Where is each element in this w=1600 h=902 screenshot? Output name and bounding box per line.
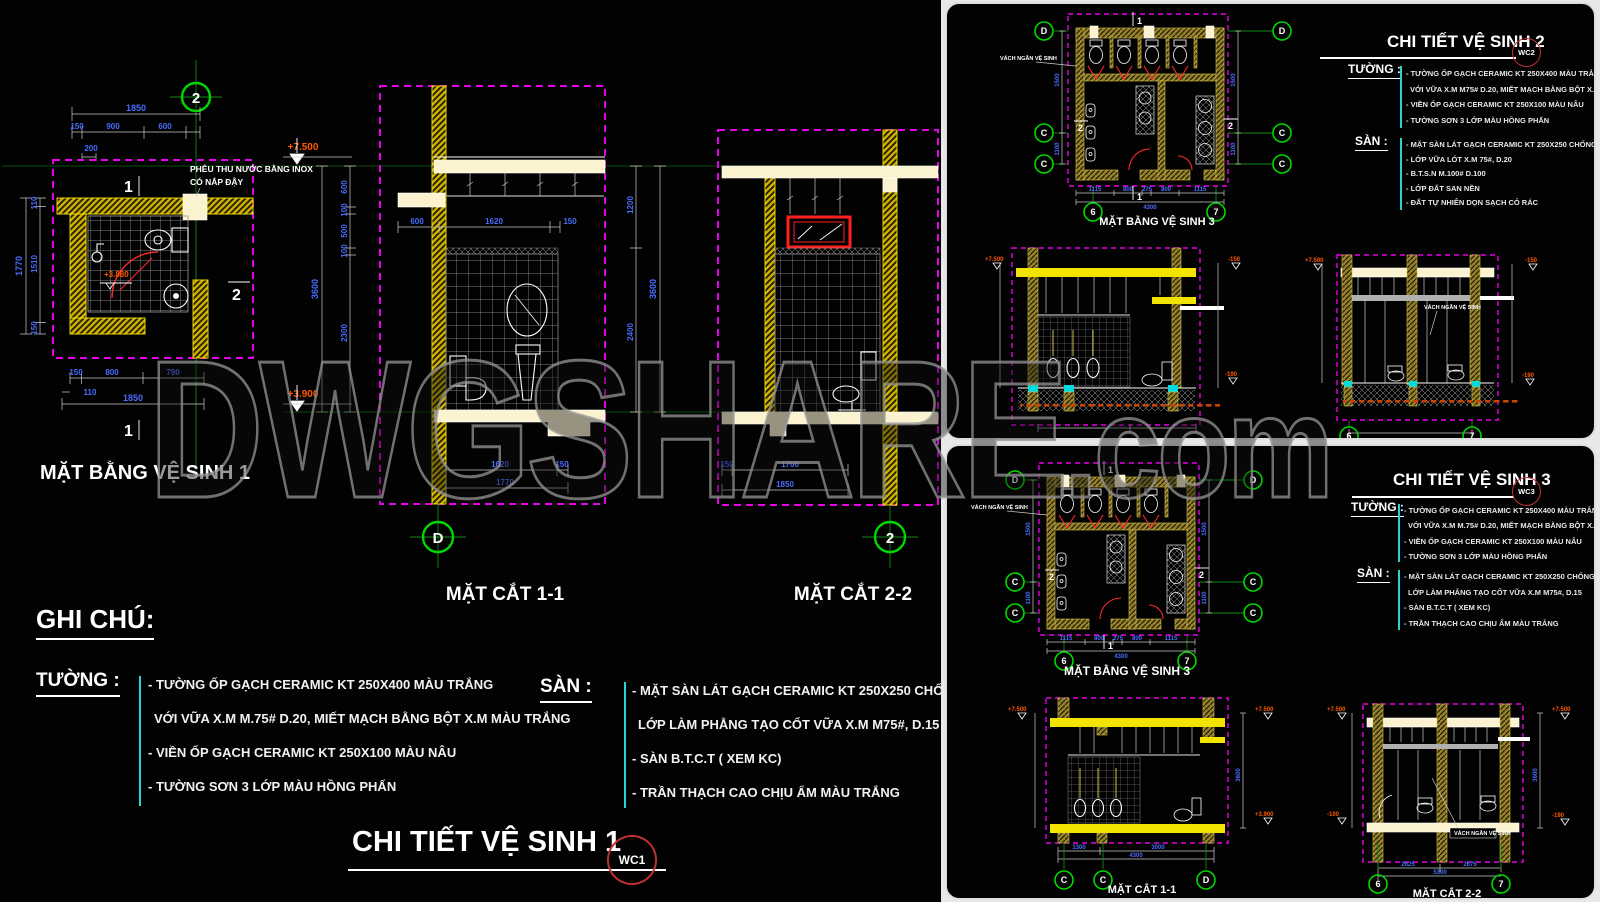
level-marker	[1529, 264, 1537, 270]
grid-label: 2	[886, 530, 894, 547]
dim-label: 1850	[123, 393, 143, 403]
dim-label: 2625	[1401, 862, 1415, 868]
level-label: -100	[1327, 812, 1340, 818]
grid-label: C	[1061, 875, 1068, 885]
elevation-b: VÁCH NGĂN VỆ SINH +7.500 -150 -190 6 7	[1305, 255, 1538, 440]
dim-label: 2400	[626, 323, 635, 341]
section-mark: 1	[124, 423, 133, 440]
dim-label: 2300	[340, 324, 349, 342]
level-marker	[290, 401, 304, 411]
grid-label: C	[1041, 159, 1048, 169]
note-line: VỚI VỮA X.M M75# D.20, MIẾT MẠCH BẰNG BỘ…	[1406, 82, 1596, 98]
sheet-wc2: D C C D C C 6 7	[945, 2, 1596, 440]
grid-label: 6	[1346, 431, 1351, 440]
level-marker	[1314, 264, 1322, 270]
dim-label: 4300	[1143, 205, 1157, 211]
partition-note: VÁCH NGĂN VỆ SINH	[1454, 829, 1511, 837]
dim-label: 1700	[781, 460, 799, 469]
dim-label: 1770	[496, 478, 514, 487]
plan-title: MẶT BẰNG VỆ SINH 3	[1057, 664, 1197, 678]
sink-counter	[1136, 86, 1214, 164]
divider	[1398, 570, 1400, 630]
plan-title: MẶT BẰNG VỆ SINH 3	[1087, 216, 1227, 228]
dim-label: 150	[720, 460, 734, 469]
wall-notes: - TƯỜNG ỐP GẠCH CERAMIC KT 250X400 MÀU T…	[1404, 503, 1596, 564]
level-label: +7.500	[288, 142, 319, 153]
divider	[624, 682, 626, 808]
dim-label: 3600	[648, 279, 658, 299]
note-line: - VIỀN ỐP GẠCH CERAMIC KT 250X100 MÀU NÂ…	[1406, 97, 1596, 113]
note-line: LỚP LÀM PHẲNG TẠO CỐT VỮA X.M M75#, D.15	[632, 708, 941, 742]
section-2-2-wc3: VÁCH NGĂN VỆ SINH +7.500 -100 +7.500 -19…	[1327, 704, 1571, 893]
dim-label: 790	[166, 368, 180, 377]
dim-label: 800	[105, 368, 119, 377]
title-underline	[1320, 57, 1516, 59]
grid-label: D	[1041, 26, 1048, 36]
note-line: VỚI VỮA X.M M.75# D.20, MIẾT MẠCH BẰNG B…	[148, 702, 570, 736]
wc-badge: WC3	[1512, 477, 1541, 506]
note-line: - TRẦN THẠCH CAO CHỊU ẨM MÀU TRẮNG	[1404, 616, 1596, 632]
partition-note: VÁCH NGĂN VỆ SINH	[1424, 303, 1481, 311]
note-line: - LỚP ĐẤT SAN NỀN	[1406, 182, 1596, 197]
section-title: MẶT CẮT 2-2	[778, 584, 928, 606]
note-line: - TƯỜNG ỐP GẠCH CERAMIC KT 250X400 MÀU T…	[1406, 66, 1596, 82]
dim-label: 200	[84, 144, 98, 153]
door-swing	[1178, 156, 1192, 170]
dim-label: 110	[30, 196, 39, 209]
section-1-1: 600 1620 150 1620 150 1770 600 100 500 1…	[283, 86, 605, 568]
wall-notes: - TƯỜNG ỐP GẠCH CERAMIC KT 250X400 MÀU T…	[148, 668, 570, 804]
note-line: - SÀN B.T.C.T ( XEM KC)	[1404, 600, 1596, 616]
level-marker	[1526, 379, 1534, 385]
toilet-fixture	[1142, 362, 1172, 386]
wall-tiles	[446, 254, 558, 410]
floor-notes-label: SÀN :	[1355, 134, 1388, 151]
section-title: MẶT CẮT 2-2	[1392, 888, 1502, 900]
ledge	[1480, 296, 1514, 300]
level-label: +3.880	[104, 270, 129, 279]
floor-notes: - MẶT SÀN LÁT GẠCH CERAMIC KT 250X250 CH…	[632, 674, 941, 810]
level-label: -190	[1522, 373, 1535, 379]
level-marker	[1264, 818, 1272, 824]
grid-label: C	[1279, 128, 1286, 138]
wall-tiles	[775, 254, 880, 412]
divider	[1398, 504, 1400, 562]
dim-label: 1850	[126, 103, 146, 113]
dim-label: 800	[1123, 187, 1134, 193]
level-marker	[1338, 713, 1346, 719]
section-mark: 2	[232, 287, 241, 304]
note-line: - MẶT SÀN LÁT GẠCH CERAMIC KT 250X250 CH…	[1404, 569, 1596, 585]
section-mark: 1	[1137, 192, 1142, 202]
dim-label: 100	[340, 203, 349, 217]
dim-label: 100	[340, 244, 349, 258]
dim-label: 1770	[14, 256, 24, 276]
ledge	[1180, 306, 1224, 310]
level-marker	[1561, 819, 1569, 825]
note-line: - LỚP VỮA LÓT X.M 75#, D.20	[1406, 153, 1596, 168]
dim-label: 1100	[1055, 142, 1061, 156]
wall-tiles	[1068, 757, 1140, 823]
level-marker	[1264, 713, 1272, 719]
level-label: -190	[1552, 813, 1565, 819]
plan-note: CÓ NẮP ĐẬY	[190, 176, 244, 187]
note-line: - TƯỜNG SƠN 3 LỚP MÀU HỒNG PHẤN	[148, 770, 570, 804]
divider	[139, 676, 141, 806]
level-label: +7.500	[1008, 707, 1027, 713]
level-label: -150	[1228, 257, 1241, 263]
grid-label: D	[1279, 26, 1286, 36]
grid-label: D	[433, 530, 444, 547]
level-marker	[290, 154, 304, 164]
level-label: +3.900	[1255, 812, 1274, 818]
note-line: - TƯỜNG SƠN 3 LỚP MÀU HỒNG PHẤN	[1404, 549, 1596, 564]
dim-label: 1500	[1055, 73, 1061, 87]
level-label: +7.500	[985, 257, 1004, 263]
section-mark: 2	[1228, 121, 1233, 131]
grid-label: 6	[1375, 879, 1380, 889]
door-swing	[1129, 149, 1150, 170]
grid-label: 7	[1469, 431, 1474, 440]
note-line: - TƯỜNG ỐP GẠCH CERAMIC KT 250X400 MÀU T…	[1404, 503, 1596, 518]
dim-label: 150	[69, 368, 83, 377]
level-marker	[1232, 263, 1240, 269]
dim-label: 1500	[1231, 73, 1237, 87]
plan-title: MẶT BẰNG VỆ SINH 1	[40, 462, 250, 485]
note-line: LỚP LÀM PHẲNG TẠO CỐT VỮA X.M M75#, D.15	[1404, 585, 1596, 601]
title-underline	[1352, 496, 1514, 498]
dim-label: 4300	[1129, 853, 1143, 859]
sheet-wc3: +7.500 +7.500 +3.900 3600 1300 3000 4300…	[945, 444, 1596, 900]
level-marker	[1229, 378, 1237, 384]
floor-notes-label: SÀN :	[1357, 566, 1390, 583]
section-2-2: 150 1700 1850 1200 2400 3600 2	[626, 130, 938, 568]
level-label: +7.500	[1552, 707, 1571, 713]
sheet-wc1: 2 1850 150 900 600 200 +7.500	[0, 0, 941, 902]
note-line: - B.T.S.N M.100# D.100	[1406, 167, 1596, 182]
grid-label: 2	[192, 90, 200, 107]
note-line: - TƯỜNG SƠN 3 LỚP MÀU HỒNG PHẤN	[1406, 113, 1596, 129]
level-label: +3.900	[288, 389, 319, 400]
dim-label: 1115	[1089, 187, 1102, 193]
section-title: MẶT CẮT 1-1	[1087, 884, 1197, 896]
dim-label: 1620	[485, 217, 503, 226]
divider	[1400, 66, 1402, 128]
plan-wc3: D C C D C C 6 7	[1000, 12, 1291, 221]
dim-label: 150	[30, 321, 39, 335]
level-label: -190	[1225, 372, 1238, 378]
dim-label: 150	[555, 460, 569, 469]
dim-label: 2675	[1463, 862, 1477, 868]
dim-label: 1200	[626, 196, 635, 214]
floor-tiles	[88, 216, 188, 312]
level-marker	[1018, 713, 1026, 719]
floor-notes: - MẶT SÀN LÁT GẠCH CERAMIC KT 250X250 CH…	[1406, 138, 1596, 211]
dim-label: 3600	[1236, 768, 1242, 782]
dim-label: 600	[410, 217, 424, 226]
divider	[1400, 138, 1402, 210]
note-line: - MẶT SÀN LÁT GẠCH CERAMIC KT 250X250 CH…	[632, 674, 941, 708]
section-title: MẶT CẮT 1-1	[430, 584, 580, 606]
dim-label: 3000	[1151, 845, 1165, 851]
dim-label: 600	[340, 180, 349, 194]
dim-label: 3600	[1533, 768, 1539, 782]
note-line: - SÀN B.T.C.T ( XEM KC)	[632, 742, 941, 776]
dim-label: 275	[1142, 187, 1153, 193]
section-mark: 1	[1137, 16, 1142, 26]
section-mark: 2	[1078, 123, 1083, 133]
dim-label: 1115	[1194, 187, 1207, 193]
ledge	[1498, 737, 1530, 741]
ground-line	[1020, 404, 1220, 408]
note-line: VỚI VỮA X.M M.75# D.20, MIẾT MẠCH BẰNG B…	[1404, 518, 1596, 533]
dim-label: 1300	[1072, 845, 1086, 851]
wc-badge: WC1	[607, 835, 657, 885]
wall-notes: - TƯỜNG ỐP GẠCH CERAMIC KT 250X400 MÀU T…	[1406, 66, 1596, 128]
grid-axis-D: D	[410, 504, 466, 568]
level-marker	[1338, 818, 1346, 824]
wall-notes-label: TƯỜNG :	[1351, 500, 1404, 517]
floor-notes: - MẶT SÀN LÁT GẠCH CERAMIC KT 250X250 CH…	[1404, 569, 1596, 631]
dim-label: 600	[158, 122, 172, 131]
grid-label: C	[1279, 159, 1286, 169]
partition-note: VÁCH NGĂN VỆ SINH	[1000, 54, 1057, 62]
wall-tiles	[1038, 317, 1130, 387]
dim-label: 1100	[1231, 142, 1237, 156]
dim-label: 5300	[1433, 870, 1447, 876]
plan-note: PHỄU THU NƯỚC BẰNG INOX	[190, 163, 313, 174]
level-label: +7.500	[1255, 707, 1274, 713]
level-label: +7.500	[1305, 258, 1324, 264]
note-line: - ĐẤT TỰ NHIÊN DỌN SẠCH CỎ RÁC	[1406, 196, 1596, 211]
sheet-title: CHI TIẾT VỆ SINH 1	[352, 826, 621, 859]
window	[788, 217, 850, 247]
elevation-a: +7.500 -150 -190	[985, 248, 1241, 432]
toilet-fixture	[1174, 798, 1201, 821]
grid-label: D	[1203, 875, 1210, 885]
note-line: - MẶT SÀN LÁT GẠCH CERAMIC KT 250X250 CH…	[1406, 138, 1596, 153]
urinal-fixtures	[1086, 104, 1095, 161]
section-1-1-wc3: +7.500 +7.500 +3.900 3600 1300 3000 4300…	[1008, 698, 1274, 889]
dim-label: 1510	[30, 255, 39, 273]
grid-axis-2b: 2	[862, 505, 918, 568]
level-marker	[1561, 713, 1569, 719]
dim-label: 900	[106, 122, 120, 131]
grid-label: C	[1041, 128, 1048, 138]
level-label: +7.500	[1327, 707, 1346, 713]
ground-line	[1343, 399, 1519, 403]
note-line: - TRẦN THẠCH CAO CHỊU ẨM MÀU TRẮNG	[632, 776, 941, 810]
wc-badge: WC2	[1512, 38, 1541, 67]
plan-wc3-copy	[971, 461, 1262, 670]
toilet-fixtures	[1417, 796, 1496, 813]
dim-label: 1620	[491, 460, 509, 469]
ground-hatch	[1341, 385, 1494, 406]
dim-label: 1850	[776, 480, 794, 489]
toilet-fixtures	[1388, 365, 1464, 381]
dim-label: 3600	[310, 279, 320, 299]
section-mark: 1	[124, 179, 133, 196]
level-label: -150	[1525, 258, 1538, 264]
floor-notes-label: SÀN :	[540, 676, 592, 703]
note-line: - VIỀN ỐP GẠCH CERAMIC KT 250X100 MÀU NÂ…	[1404, 534, 1596, 549]
dim-label: 150	[70, 122, 84, 131]
note-line: - VIỀN ỐP GẠCH CERAMIC KT 250X100 MÀU NÂ…	[148, 736, 570, 770]
wall-notes-label: TƯỜNG :	[36, 670, 120, 697]
dim-label: 800	[1161, 187, 1172, 193]
dim-label: 110	[84, 388, 97, 397]
cad-sheet: 2 1850 150 900 600 200 +7.500	[0, 0, 1600, 902]
wall-notes-label: TƯỜNG :	[1348, 62, 1401, 79]
notes-heading: GHI CHÚ:	[36, 604, 154, 640]
dim-label: 150	[563, 217, 577, 226]
note-line: - TƯỜNG ỐP GẠCH CERAMIC KT 250X400 MÀU T…	[148, 668, 570, 702]
dim-label: 500	[340, 224, 349, 238]
